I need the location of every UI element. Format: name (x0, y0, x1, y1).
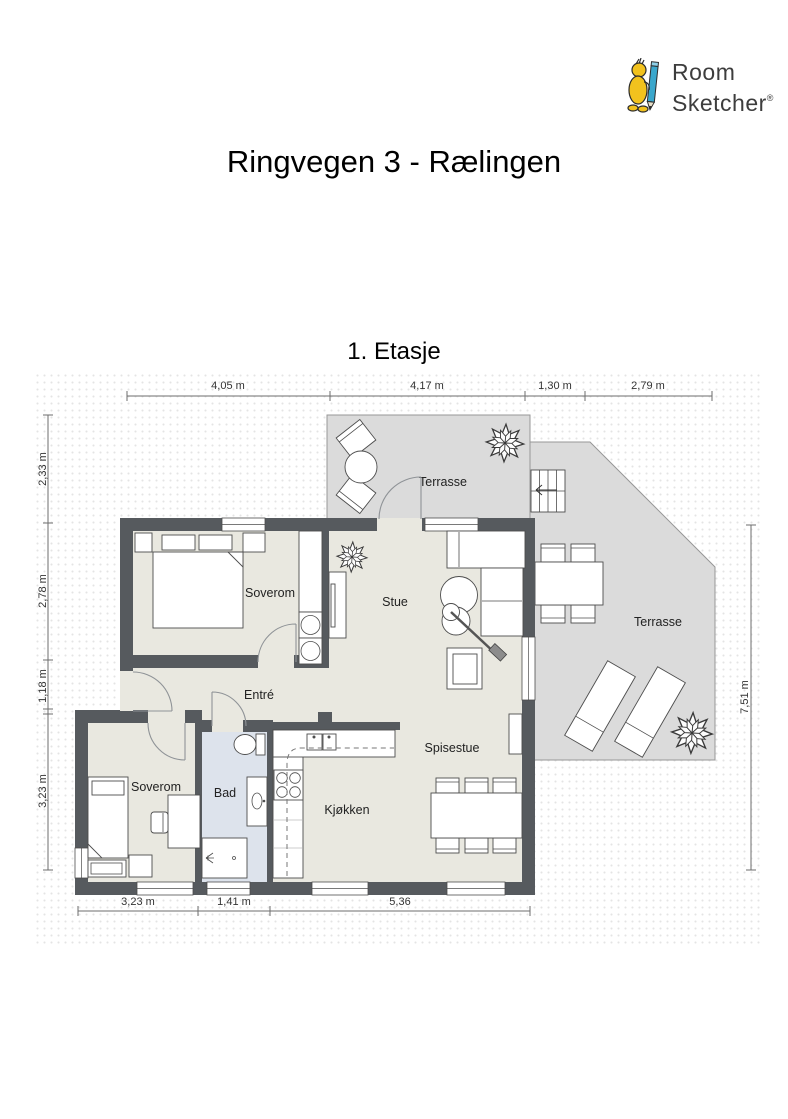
dim-left-3: 1,18 m (37, 669, 49, 703)
dimension-right: 7,51 m (739, 525, 756, 870)
dim-bottom-1: 3,23 m (121, 896, 155, 908)
stairs (531, 470, 565, 512)
single-bed (88, 777, 128, 858)
tv-bench (329, 572, 346, 638)
dim-top-3: 1,30 m (538, 380, 572, 392)
roomsketcher-logo: Room Sketcher® (626, 58, 774, 116)
stove (274, 770, 303, 800)
room-label-entry: Entré (244, 688, 274, 702)
dim-top-4: 2,79 m (631, 380, 665, 392)
floorplan-drawing: 4,05 m 4,17 m 1,30 m 2,79 m 2,33 m 2,78 … (0, 375, 788, 950)
dresser (88, 860, 126, 877)
logo-line1: Room (672, 59, 735, 85)
shower (202, 838, 247, 878)
room-label-bedroom1: Soverom (245, 586, 295, 600)
wardrobe (299, 531, 322, 612)
page-title: Ringvegen 3 - Rælingen (0, 144, 788, 180)
room-label-bedroom2: Soverom (131, 780, 181, 794)
nightstand (243, 533, 265, 552)
room-label-terrace-top: Terrasse (419, 475, 467, 489)
stacked-appliances (299, 612, 322, 664)
room-label-bath: Bad (214, 786, 236, 800)
room-label-living: Stue (382, 595, 408, 609)
roomsketcher-wordmark: Room Sketcher® (672, 59, 774, 116)
dim-left-1: 2,33 m (37, 452, 49, 486)
dining-table (431, 793, 522, 838)
terrace-door-opening (377, 518, 422, 531)
room-label-terrace-right: Terrasse (634, 615, 682, 629)
sideboard (509, 714, 522, 754)
dimension-top: 4,05 m 4,17 m 1,30 m 2,79 m (127, 380, 712, 401)
dim-left-4: 3,23 m (37, 774, 49, 808)
front-door-opening (120, 671, 133, 711)
floorplan-page: Room Sketcher® Ringvegen 3 - Rælingen 1.… (0, 0, 788, 1119)
dim-top-1: 4,05 m (211, 380, 245, 392)
dimension-bottom: 3,23 m 1,41 m 5,36 (78, 896, 530, 916)
nightstand (129, 855, 152, 877)
bathroom-vanity (247, 777, 267, 826)
room-label-kitchen: Kjøkken (324, 803, 369, 817)
dim-right-1: 7,51 m (739, 680, 751, 714)
terrace-top: Terrasse (327, 415, 530, 520)
registered-mark: ® (767, 93, 774, 103)
armchair (447, 648, 482, 689)
logo-line2: Sketcher (672, 90, 767, 116)
roomsketcher-character-icon (626, 58, 666, 116)
toilet (234, 734, 265, 755)
dim-bottom-3: 5,36 (389, 896, 410, 908)
nightstand (135, 533, 152, 552)
dim-bottom-2: 1,41 m (217, 896, 251, 908)
dimension-left: 2,33 m 2,78 m 1,18 m 3,23 m (37, 415, 53, 870)
terrace-right: Terrasse (530, 442, 715, 760)
room-label-dining: Spisestue (425, 741, 480, 755)
dim-top-2: 4,17 m (410, 380, 444, 392)
floor-title: 1. Etasje (0, 338, 788, 366)
dim-left-2: 2,78 m (37, 574, 49, 608)
